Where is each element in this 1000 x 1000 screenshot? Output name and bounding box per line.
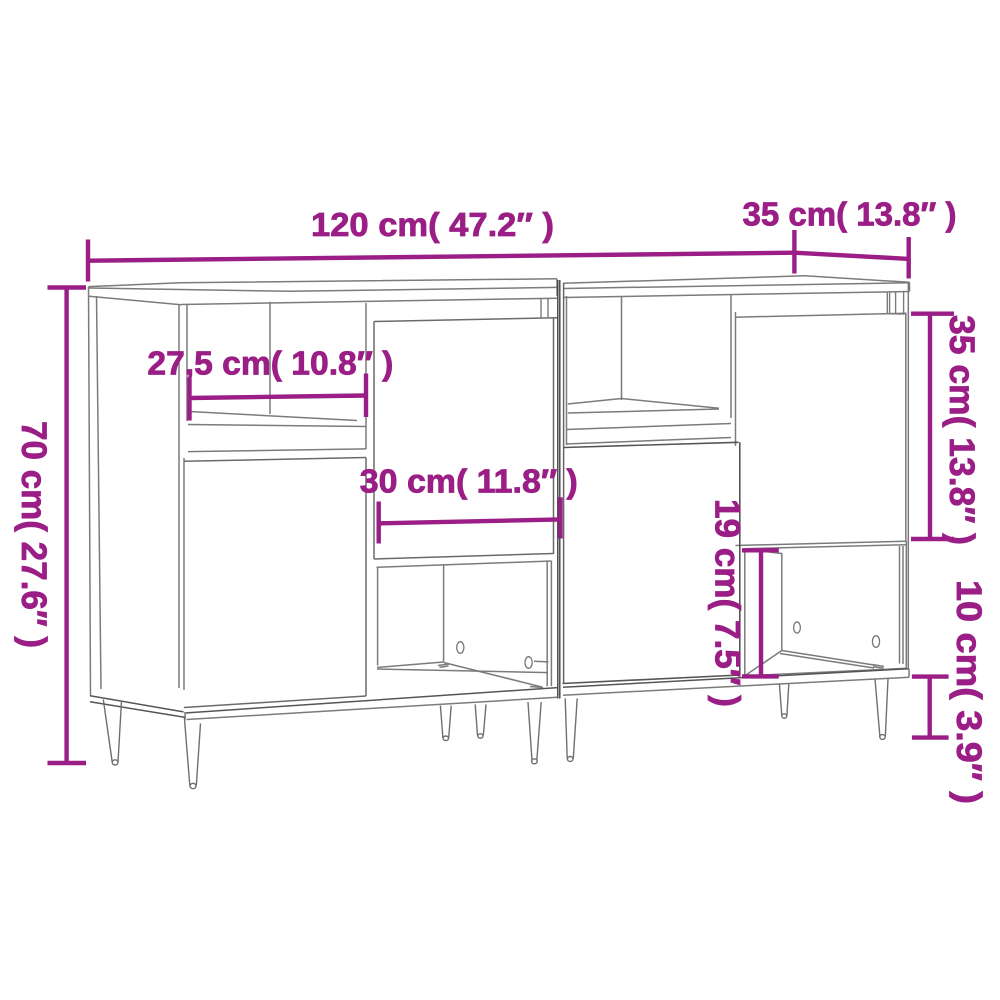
svg-text:19 cm( 7.5″ ): 19 cm( 7.5″ ) xyxy=(708,499,747,707)
svg-text:35 cm( 13.8″ ): 35 cm( 13.8″ ) xyxy=(743,196,957,233)
svg-text:35 cm( 13.8″ ): 35 cm( 13.8″ ) xyxy=(942,315,981,545)
svg-text:27,5 cm( 10.8″ ): 27,5 cm( 10.8″ ) xyxy=(147,345,393,382)
svg-text:120 cm( 47.2″ ): 120 cm( 47.2″ ) xyxy=(311,206,554,243)
svg-text:30 cm( 11.8″ ): 30 cm( 11.8″ ) xyxy=(360,463,578,500)
svg-text:10 cm( 3.9″ ): 10 cm( 3.9″ ) xyxy=(949,580,988,804)
svg-text:70 cm( 27.6″ ): 70 cm( 27.6″ ) xyxy=(14,421,53,648)
